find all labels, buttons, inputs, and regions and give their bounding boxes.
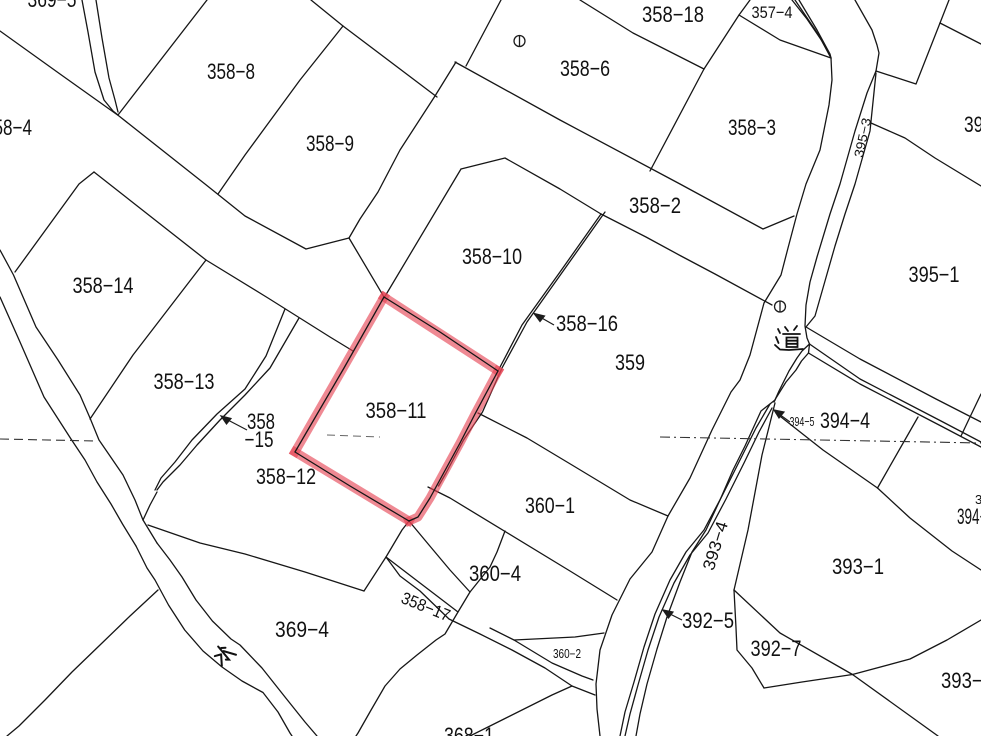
svg-text:392−7: 392−7	[751, 636, 802, 661]
svg-text:358−14: 358−14	[73, 273, 134, 298]
svg-text:394−4: 394−4	[820, 408, 870, 433]
svg-text:393−1: 393−1	[832, 554, 884, 579]
svg-text:357−4: 357−4	[752, 3, 793, 22]
svg-text:358−12: 358−12	[256, 464, 316, 489]
svg-text:368−1: 368−1	[444, 723, 494, 736]
svg-text:369−5: 369−5	[28, 0, 77, 12]
svg-text:360−1: 360−1	[525, 493, 575, 518]
svg-text:358−8: 358−8	[207, 59, 255, 84]
svg-text:360−4: 360−4	[469, 561, 521, 586]
svg-text:−15: −15	[245, 427, 274, 452]
svg-text:358−4: 358−4	[0, 115, 32, 140]
svg-text:358−11: 358−11	[366, 398, 427, 423]
svg-text:395−1: 395−1	[909, 262, 960, 287]
svg-text:358−3: 358−3	[728, 115, 776, 140]
svg-text:358−9: 358−9	[306, 131, 354, 156]
svg-text:394−5: 394−5	[790, 414, 815, 429]
svg-text:358−16: 358−16	[556, 311, 618, 336]
svg-text:358−13: 358−13	[154, 369, 215, 394]
svg-text:360−2: 360−2	[553, 647, 581, 661]
svg-text:358−10: 358−10	[462, 244, 522, 269]
svg-text:358−2: 358−2	[629, 193, 681, 218]
svg-text:358−6: 358−6	[560, 56, 610, 81]
svg-text:39: 39	[975, 492, 981, 507]
svg-text:395: 395	[964, 112, 981, 137]
svg-text:393−2: 393−2	[941, 668, 981, 693]
svg-text:394−1: 394−1	[957, 504, 981, 529]
svg-text:392−5: 392−5	[682, 608, 734, 633]
svg-text:359: 359	[615, 350, 645, 375]
svg-text:369−4: 369−4	[275, 617, 329, 642]
svg-text:358−18: 358−18	[642, 2, 704, 27]
